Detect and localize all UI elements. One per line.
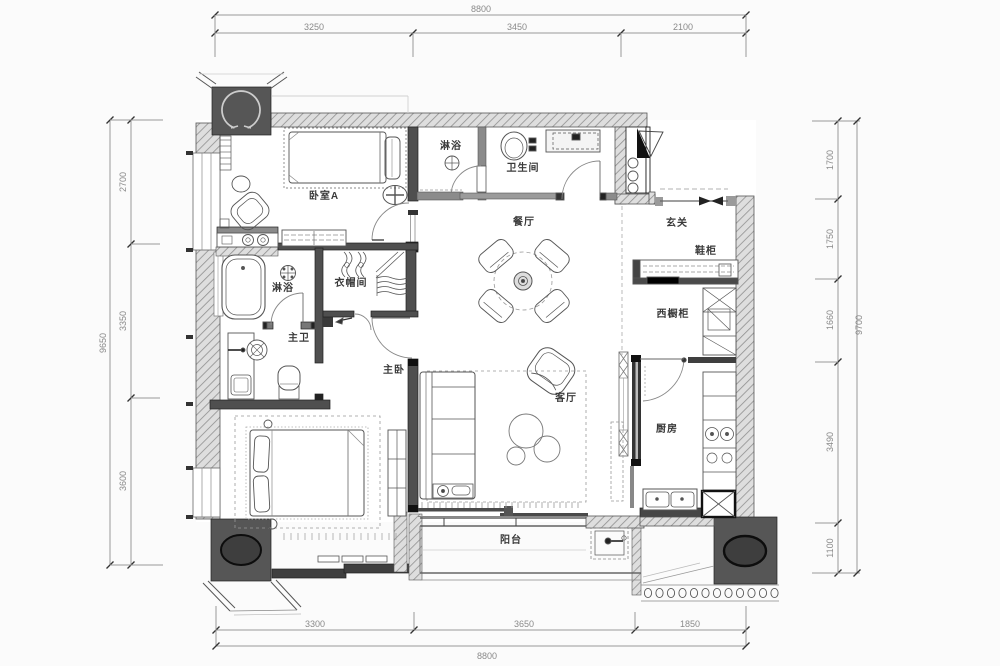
svg-text:厨房: 厨房 (656, 422, 678, 435)
svg-text:3300: 3300 (305, 619, 325, 629)
svg-text:主卫: 主卫 (288, 331, 310, 344)
svg-text:3450: 3450 (507, 22, 527, 32)
svg-text:鞋柜: 鞋柜 (695, 244, 717, 257)
svg-text:衣帽间: 衣帽间 (335, 276, 368, 289)
svg-text:3250: 3250 (304, 22, 324, 32)
svg-text:玄关: 玄关 (666, 216, 688, 229)
svg-text:1100: 1100 (825, 538, 835, 557)
svg-text:1660: 1660 (825, 310, 835, 330)
svg-text:8800: 8800 (477, 651, 497, 661)
svg-text:主卧: 主卧 (383, 363, 405, 376)
svg-text:餐厅: 餐厅 (512, 215, 535, 228)
svg-text:3490: 3490 (825, 432, 835, 452)
svg-text:8800: 8800 (471, 4, 491, 14)
svg-text:3350: 3350 (118, 311, 128, 331)
svg-text:淋浴: 淋浴 (440, 139, 462, 152)
svg-text:9650: 9650 (98, 333, 108, 353)
svg-text:3650: 3650 (514, 619, 534, 629)
svg-text:客厅: 客厅 (554, 391, 577, 404)
svg-text:西橱柜: 西橱柜 (657, 307, 690, 320)
svg-text:3600: 3600 (118, 471, 128, 491)
svg-text:卫生间: 卫生间 (507, 161, 540, 174)
svg-text:1850: 1850 (680, 619, 700, 629)
svg-text:2100: 2100 (673, 22, 693, 32)
svg-text:1700: 1700 (825, 150, 835, 170)
svg-text:阳台: 阳台 (500, 533, 522, 546)
svg-text:9700: 9700 (854, 315, 864, 335)
svg-text:1750: 1750 (825, 229, 835, 249)
svg-text:2700: 2700 (118, 172, 128, 192)
svg-text:卧室A: 卧室A (309, 189, 339, 202)
svg-text:淋浴: 淋浴 (272, 281, 294, 294)
